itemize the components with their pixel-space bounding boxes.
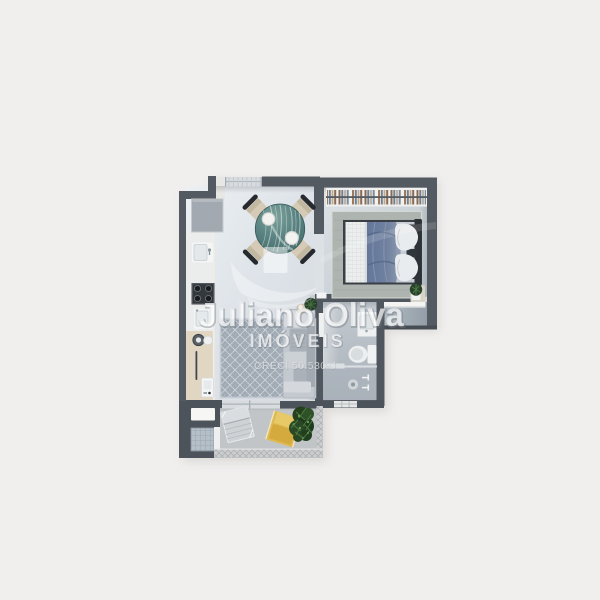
svg-text:IMÓVEIS: IMÓVEIS xyxy=(249,330,345,351)
svg-text:CRECI 50.530-J: CRECI 50.530-J xyxy=(254,360,336,372)
svg-text:Juliano Oliva: Juliano Oliva xyxy=(198,296,404,333)
